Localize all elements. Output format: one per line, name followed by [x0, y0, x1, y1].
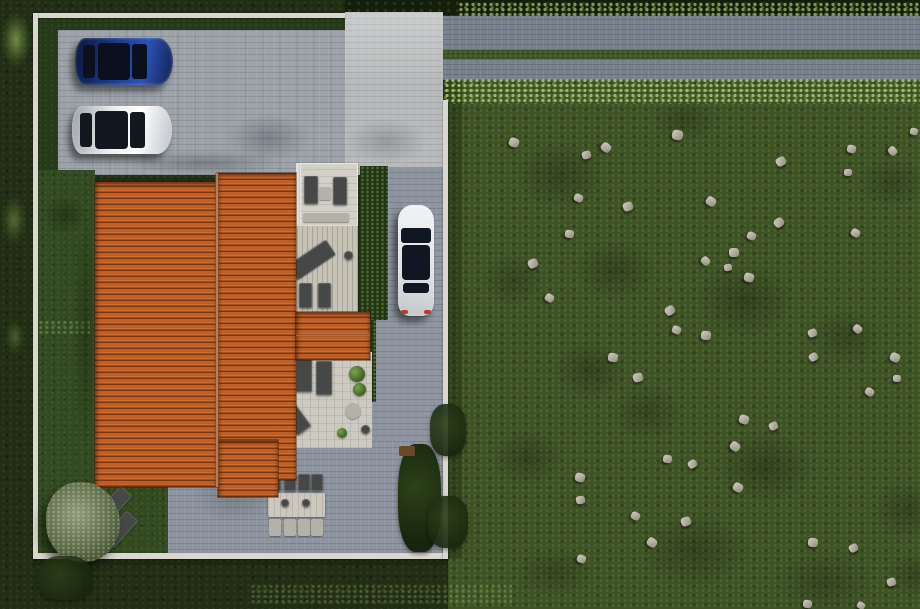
hedge-beside-house [360, 166, 388, 320]
dining-chair [269, 519, 281, 536]
field-shadow-blob [800, 300, 895, 375]
field-shadow-blob [500, 540, 610, 605]
roof-ridge-main [215, 173, 219, 487]
dining-chair [298, 519, 310, 536]
car-roofg-glass [402, 245, 429, 281]
terrace-bench [303, 213, 349, 222]
boundary-wall-left [33, 13, 38, 559]
car-winds-glass [130, 112, 145, 149]
car-winds-glass [132, 44, 147, 80]
hedgerow-outer-bottom [250, 584, 512, 604]
patio-chair [316, 361, 332, 395]
bush [4, 318, 26, 356]
green-margin-left [37, 18, 58, 172]
road-grass-median [438, 50, 920, 59]
field-shadow-blob [620, 500, 770, 600]
bush [0, 10, 32, 70]
hedgerow-above-road [458, 2, 920, 16]
tree-over-wall [430, 404, 466, 456]
rock [844, 169, 852, 176]
patio-chair [296, 358, 312, 392]
rock [802, 599, 812, 608]
roof-main-left-slope [95, 182, 217, 487]
bush [0, 194, 28, 246]
deck-planter [344, 251, 353, 260]
dining-chair [311, 474, 323, 491]
dining-chair [311, 519, 323, 536]
terrace-sofa [304, 176, 318, 204]
car-blue-sedan [75, 38, 173, 85]
tree-shadow-on-lawn [36, 190, 94, 240]
rock [662, 454, 672, 463]
road-upper-lane [438, 16, 920, 50]
patio-plant [349, 366, 365, 382]
rock [701, 331, 712, 341]
dining-chair [284, 519, 296, 536]
rock [808, 538, 819, 548]
rock [671, 129, 684, 141]
tree-over-wall [428, 496, 468, 548]
table-decor [302, 499, 310, 507]
field-shadow-blob [700, 420, 830, 515]
car-taillight [401, 310, 409, 314]
car-white-parked [398, 205, 434, 316]
terrace-coffee-table [319, 187, 331, 200]
car-winds-glass [401, 228, 431, 242]
roof-main-right-slope [217, 173, 296, 480]
boundary-wall-right [443, 100, 448, 559]
wood-planter [399, 446, 415, 456]
rock [607, 352, 618, 363]
property-aerial-view [0, 0, 920, 609]
rock [729, 248, 739, 257]
road-lower-lane [438, 59, 920, 80]
patio-plant [337, 428, 347, 438]
terrace-sofa [333, 177, 347, 205]
patio-plant [353, 383, 366, 396]
field-shadow-blob [600, 375, 695, 450]
field-shadow-blob [560, 230, 670, 310]
shrub-outer [38, 556, 92, 600]
roof-ridge-wing [296, 334, 370, 337]
field-shadow-blob [470, 245, 555, 315]
dining-chair [298, 474, 310, 491]
car-rearw-glass [403, 283, 429, 293]
deck-chair [299, 283, 312, 308]
deck-chair [318, 283, 331, 308]
hedgerow-below-road [438, 78, 920, 104]
car-roofg-glass [98, 43, 130, 81]
field-shadow-blob [680, 250, 810, 350]
car-white-sedan [72, 106, 172, 154]
table-decor [281, 499, 289, 507]
car-taillight [424, 310, 432, 314]
tree-shadow-on-driveway [212, 106, 324, 170]
car-roofg-glass [95, 111, 128, 149]
field-shadow-blob [480, 420, 575, 495]
car-rearw-glass [83, 45, 95, 78]
car-rearw-glass [80, 113, 92, 147]
rock [893, 375, 901, 382]
boundary-wall-top [33, 13, 345, 18]
olive-tree [46, 482, 120, 562]
patio-round-table [345, 403, 361, 419]
roof-south-tail [218, 440, 278, 497]
field-edge-shade [448, 80, 462, 558]
rock [564, 229, 574, 238]
patio-pot [361, 425, 370, 434]
